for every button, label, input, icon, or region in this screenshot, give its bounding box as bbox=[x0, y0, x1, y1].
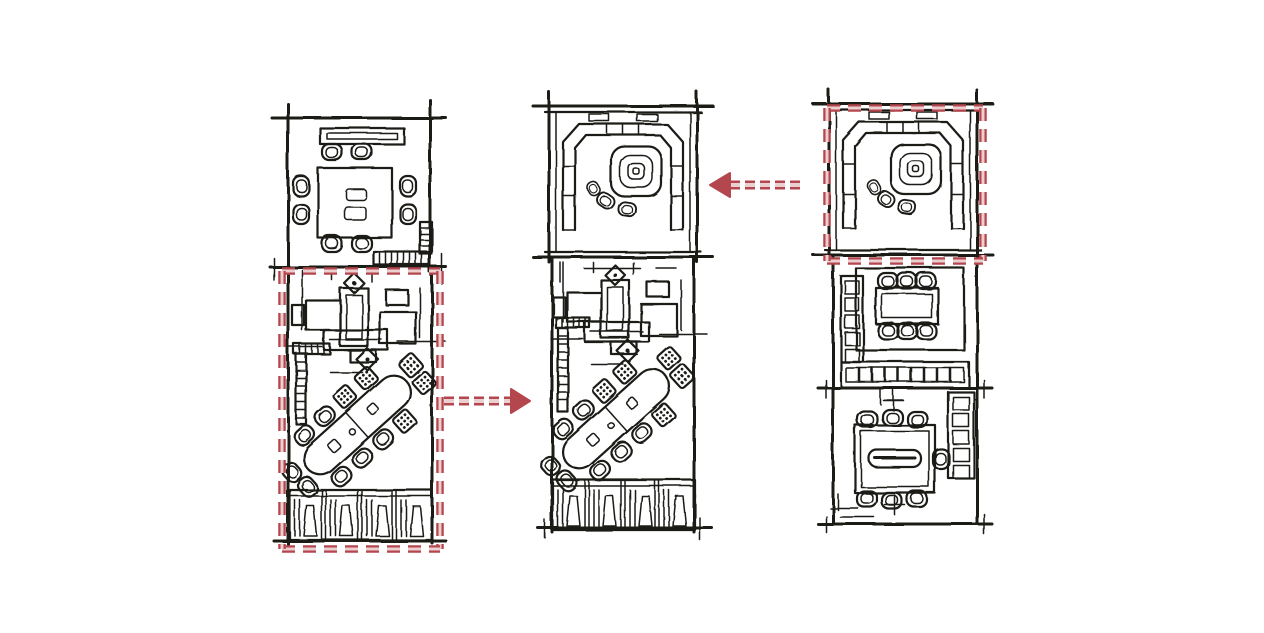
u-shaped-lounge bbox=[813, 90, 993, 260]
diagonal-conference-table bbox=[266, 337, 448, 512]
chair bbox=[882, 409, 902, 425]
floor-plan-sketch-canvas bbox=[0, 0, 1264, 633]
plan-middle bbox=[525, 92, 713, 540]
chair bbox=[933, 449, 949, 469]
chair bbox=[400, 176, 416, 196]
arrow-right-icon bbox=[511, 389, 530, 413]
chair bbox=[400, 204, 416, 224]
u-shaped-lounge bbox=[533, 92, 713, 262]
chair bbox=[916, 273, 936, 289]
chair bbox=[897, 323, 917, 339]
chair bbox=[897, 273, 917, 289]
chair bbox=[916, 323, 936, 339]
shelf-l-unit bbox=[841, 276, 969, 388]
office-desk-cluster bbox=[290, 270, 446, 372]
chair bbox=[857, 411, 877, 427]
chair bbox=[352, 144, 372, 160]
chair bbox=[293, 204, 309, 224]
hatched-counter-l bbox=[294, 344, 330, 424]
stair-counter bbox=[374, 222, 432, 265]
dining-room bbox=[293, 128, 432, 265]
chair bbox=[878, 273, 898, 289]
office-desk-cluster bbox=[551, 262, 707, 364]
cross-mark bbox=[883, 390, 903, 410]
chair bbox=[322, 144, 342, 160]
chair bbox=[907, 411, 927, 427]
chair bbox=[352, 236, 372, 252]
chair bbox=[882, 493, 902, 509]
chair bbox=[907, 491, 927, 507]
sideboard bbox=[320, 128, 404, 144]
chair bbox=[878, 323, 898, 339]
meeting-table-room bbox=[841, 268, 969, 388]
chair bbox=[857, 491, 877, 507]
plan-right bbox=[813, 90, 993, 534]
chair bbox=[322, 236, 342, 252]
dining-table bbox=[318, 168, 392, 238]
arrow-left-icon bbox=[710, 173, 730, 197]
arrow-left-to-middle bbox=[444, 389, 530, 413]
conference-room bbox=[830, 388, 974, 517]
plan-left bbox=[266, 100, 448, 545]
arrow-right-to-middle bbox=[710, 173, 800, 197]
chair bbox=[293, 176, 309, 196]
